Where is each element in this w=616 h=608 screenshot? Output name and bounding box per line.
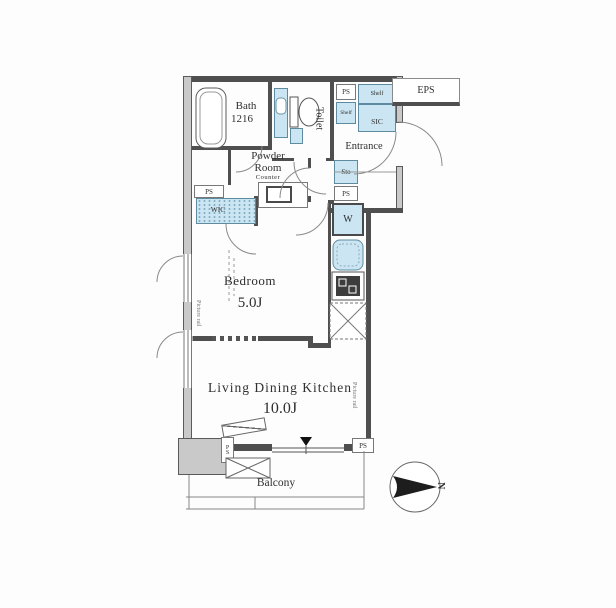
washer-label: W [343,214,352,225]
ps-label: PS [342,88,350,96]
pipe-space-box-bottom-right: PS [352,438,374,453]
window-casement-arc [157,332,183,358]
bath-vanity-strip [274,88,288,138]
floor-plan: PS Shelf Shelf Sto PS W PS EPS PS PS [0,0,616,608]
wall-partition-a [190,336,212,341]
balcony-window [272,446,344,454]
pipe-space-box-bottom-left: PS [221,437,234,463]
bedroom-size-label: 5.0J [198,295,302,312]
bath-size-label: 1216 [210,113,274,126]
bath-room-label: Bath [214,100,278,113]
north-triangle-marker [393,476,437,498]
washbasin-icon [266,186,292,203]
compass-icon [390,462,440,512]
small-shelf-box [290,128,303,144]
window-casement-arc [157,256,183,282]
wall-bottom-left-seg [228,444,272,451]
powder-room-label-line2: Room [230,162,306,175]
wall-partition-c [308,343,331,348]
toilet-room-label: Toilet [313,88,325,150]
ps-label: PS [225,445,231,455]
pipe-space-box-top: PS [336,84,356,100]
sliding-partition [212,336,258,341]
wall-left-outer [183,76,192,445]
window-marker [300,437,312,446]
eps-label: EPS [417,85,434,96]
wall-powder-right-b [308,196,311,202]
ldk-size-label: 10.0J [192,400,368,418]
wall-right-entrance [396,166,403,213]
wall-kitchen-left [328,200,331,343]
shelf-box-side: Shelf [336,102,356,124]
eps-box: EPS [392,78,460,106]
wall-toilet-bottom-b [326,158,334,161]
entrance-door-arc [398,122,442,166]
refrigerator-space-box [330,303,366,339]
bedroom-label: Bedroom [198,274,302,289]
picture-rail-label: Picture rail [194,293,201,333]
shelf-label: Shelf [340,110,352,116]
wic-door-arc [226,224,256,254]
counter-icon [221,417,267,437]
sink-icon [333,240,363,270]
pipe-space-box-mid: PS [334,186,358,201]
plan-linework [0,0,616,608]
stove-icon [332,272,364,300]
ps-label: PS [205,188,213,196]
shelf-box-top: Shelf [358,84,396,104]
storage-label: Sto [341,168,350,176]
ps-label: PS [342,190,350,198]
powder-room-label-line1: Powder [230,150,306,163]
entrance-label: Entrance [330,141,398,153]
picture-rail-label: Picture rail [350,372,357,418]
north-label: N [434,479,446,493]
counter-label: Counter [238,174,298,181]
washing-machine-box: W [332,203,364,236]
storage-box: Sto [334,160,358,184]
pipe-space-box-wic: PS [194,185,224,198]
balcony-label: Balcony [236,477,316,490]
wall-powder-right-a [308,158,311,168]
wall-top [186,76,398,82]
shelf-label: Shelf [371,91,384,97]
wic-label: WIC [196,206,240,215]
ps-label: PS [359,442,367,450]
sic-label: SIC [358,118,396,127]
ldk-label: Living Dining Kitchen [192,380,368,396]
wall-partition-b [258,336,312,341]
